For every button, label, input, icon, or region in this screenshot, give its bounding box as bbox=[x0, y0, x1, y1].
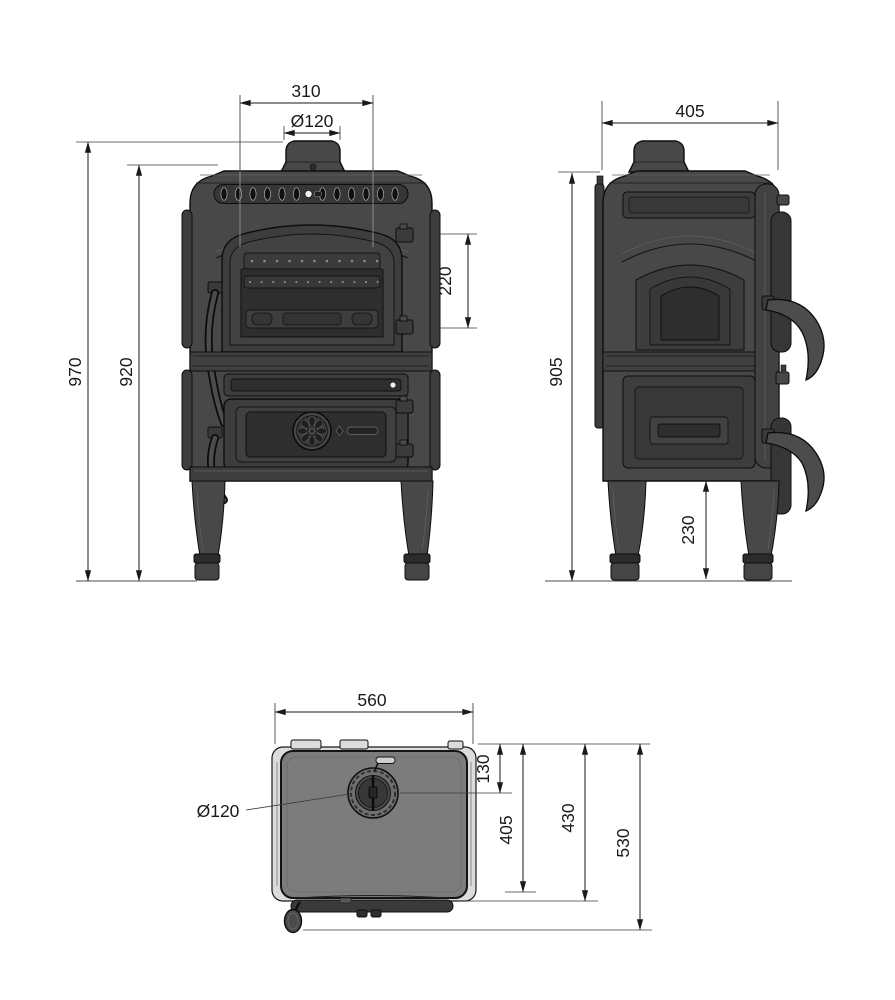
brand-wordmark bbox=[347, 427, 378, 435]
dim-label-905: 905 bbox=[546, 357, 566, 386]
dim-top-plate-depth: 405 bbox=[496, 744, 536, 892]
front-lower-door bbox=[208, 396, 413, 500]
dim-label-530: 530 bbox=[613, 828, 633, 857]
technical-drawing-canvas: 970 920 310 Ø120 220 bbox=[0, 0, 895, 1000]
dim-side-depth: 405 bbox=[602, 101, 778, 170]
side-front-leg bbox=[741, 481, 779, 580]
dim-label-920: 920 bbox=[116, 357, 136, 386]
door-bottom-ornament bbox=[246, 310, 378, 328]
dim-side-body-height: 905 bbox=[546, 172, 600, 581]
front-mid-band bbox=[190, 352, 432, 371]
dim-label-flue-top: Ø120 bbox=[197, 801, 240, 821]
side-back-leg bbox=[608, 481, 646, 580]
vent-knob bbox=[305, 190, 312, 197]
front-view: 970 920 310 Ø120 220 bbox=[65, 81, 477, 581]
dim-side-leg-clearance: 230 bbox=[678, 481, 706, 579]
air-control-rosette bbox=[293, 412, 331, 450]
side-latch-top bbox=[777, 195, 789, 205]
side-latch-mid bbox=[776, 372, 789, 384]
front-ash-lip bbox=[224, 374, 408, 396]
dim-top-width: 560 bbox=[275, 690, 473, 744]
dim-front-glass-height: 220 bbox=[435, 234, 477, 328]
side-view: 405 905 230 bbox=[545, 101, 824, 581]
front-left-leg bbox=[192, 481, 225, 580]
dim-label-405-side: 405 bbox=[675, 101, 704, 121]
dim-label-430: 430 bbox=[558, 803, 578, 832]
ash-lip-pin bbox=[390, 382, 396, 388]
dim-label-310: 310 bbox=[291, 81, 320, 101]
side-mid-band bbox=[603, 352, 779, 371]
top-view: 560 130 405 430 530 Ø120 bbox=[197, 690, 652, 933]
front-right-leg bbox=[401, 481, 433, 580]
stove-dimensional-drawing: 970 920 310 Ø120 220 bbox=[0, 0, 895, 1000]
dim-label-405-top: 405 bbox=[496, 815, 516, 844]
side-arched-panel bbox=[636, 265, 744, 350]
dim-label-970: 970 bbox=[65, 357, 85, 386]
dim-front-flue-diameter: Ø120 bbox=[284, 111, 340, 140]
front-flue-collar bbox=[281, 141, 345, 172]
side-lower-panel bbox=[623, 376, 755, 468]
glass-rail-lower bbox=[244, 276, 380, 288]
dim-label-560: 560 bbox=[357, 690, 386, 710]
damper-handle bbox=[376, 757, 395, 764]
front-vent-band bbox=[214, 185, 408, 204]
dim-label-230: 230 bbox=[678, 515, 698, 544]
front-plinth bbox=[190, 467, 432, 481]
dim-label-130: 130 bbox=[473, 754, 493, 783]
dim-label-220: 220 bbox=[435, 266, 455, 295]
side-flue-collar bbox=[629, 141, 689, 172]
glass-rail-upper bbox=[244, 253, 380, 269]
dim-label-flue-front: Ø120 bbox=[291, 111, 334, 131]
side-door-edge bbox=[755, 184, 791, 514]
